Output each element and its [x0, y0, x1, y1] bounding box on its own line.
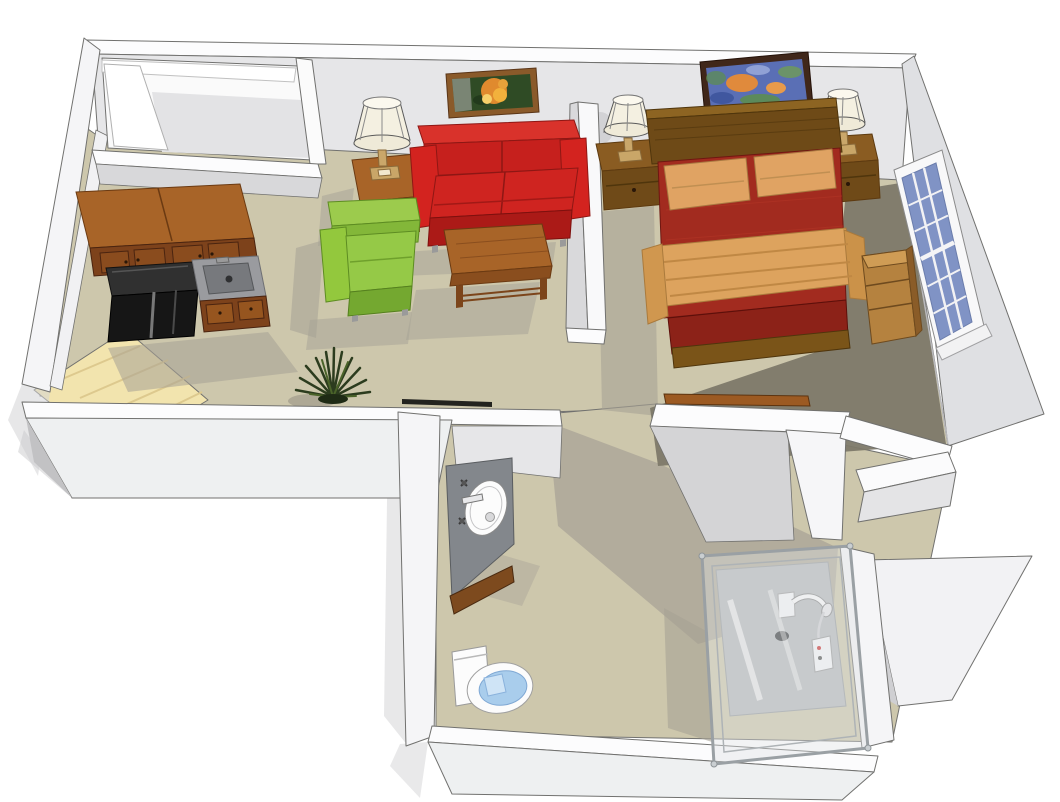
- floor-plan-screenshot: [0, 0, 1060, 802]
- floor-plan-canvas: [0, 0, 1060, 802]
- black-appliance: [106, 262, 198, 342]
- south-wall-outer: [26, 418, 452, 498]
- shower-glass: [702, 546, 868, 764]
- flower-picture: [446, 68, 539, 118]
- sink-counter: [192, 256, 266, 301]
- bed: [642, 98, 868, 368]
- base-drawers: [200, 296, 270, 332]
- shower: [699, 543, 871, 767]
- entry-closet: [92, 58, 326, 198]
- dresser: [862, 246, 922, 344]
- wing-left-wall: [398, 412, 440, 746]
- closet-desk-top: [664, 394, 810, 406]
